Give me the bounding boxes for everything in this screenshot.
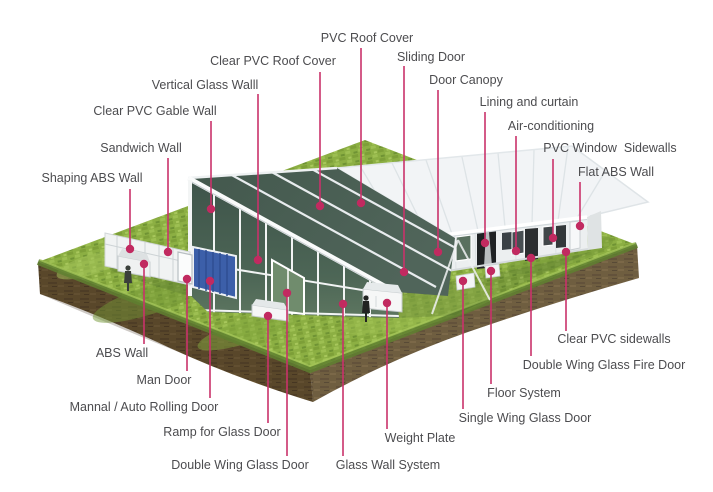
dot-air-conditioning: [512, 247, 520, 255]
dot-abs-wall: [140, 260, 148, 268]
dot-shaping-abs-wall: [126, 245, 134, 253]
dot-clear-pvc-gable-wall: [207, 205, 215, 213]
dot-clear-pvc-sidewalls: [562, 248, 570, 256]
label-floor-system: Floor System: [487, 386, 561, 400]
label-door-canopy: Door Canopy: [429, 73, 503, 87]
label-sliding-door: Sliding Door: [397, 50, 465, 64]
dot-clear-pvc-roof-cover: [316, 202, 324, 210]
dot-double-wing-glass-fire-door: [527, 254, 535, 262]
label-clear-pvc-roof-cover: Clear PVC Roof Cover: [210, 54, 336, 68]
label-double-wing-glass-door: Double Wing Glass Door: [171, 458, 309, 472]
label-air-conditioning: Air-conditioning: [508, 119, 594, 133]
dot-single-wing-glass-door: [459, 277, 467, 285]
label-double-wing-glass-fire-door: Double Wing Glass Fire Door: [523, 358, 686, 372]
label-pvc-roof-cover: PVC Roof Cover: [321, 31, 413, 45]
label-mannal-auto-rolling-door: Mannal / Auto Rolling Door: [70, 400, 219, 414]
label-glass-wall-system: Glass Wall System: [336, 458, 440, 472]
label-abs-wall: ABS Wall: [96, 346, 148, 360]
label-lining-and-curtain: Lining and curtain: [480, 95, 579, 109]
tent-illustration: [0, 0, 713, 492]
label-pvc-window-sidewalls: PVC Window Sidewalls: [543, 141, 676, 155]
dot-pvc-roof-cover: [357, 199, 365, 207]
label-weight-plate: Weight Plate: [385, 431, 456, 445]
tent-parts-diagram: PVC Roof Cover Clear PVC Roof Cover Slid…: [0, 0, 713, 492]
dot-door-canopy: [434, 248, 442, 256]
glass-window: [456, 235, 471, 261]
dot-double-wing-glass-door: [283, 289, 291, 297]
dot-glass-wall-system: [339, 300, 347, 308]
dot-floor-system: [487, 267, 495, 275]
dot-sandwich-wall: [164, 248, 172, 256]
label-single-wing-glass-door: Single Wing Glass Door: [459, 411, 592, 425]
label-vertical-glass-walll: Vertical Glass Walll: [152, 78, 259, 92]
label-clear-pvc-sidewalls: Clear PVC sidewalls: [557, 332, 670, 346]
dot-pvc-window-sidewalls: [549, 234, 557, 242]
dot-ramp-for-glass-door: [264, 312, 272, 320]
dot-flat-abs-wall: [576, 222, 584, 230]
dark-window: [556, 225, 566, 248]
label-man-door: Man Door: [137, 373, 192, 387]
label-ramp-for-glass-door: Ramp for Glass Door: [163, 425, 280, 439]
label-sandwich-wall: Sandwich Wall: [100, 141, 182, 155]
label-flat-abs-wall: Flat ABS Wall: [578, 165, 654, 179]
label-clear-pvc-gable-wall: Clear PVC Gable Wall: [93, 104, 216, 118]
dot-lining-and-curtain: [481, 239, 489, 247]
label-shaping-abs-wall: Shaping ABS Wall: [42, 171, 143, 185]
dot-sliding-door: [400, 268, 408, 276]
dot-mannal-auto-rolling-door: [206, 277, 214, 285]
dot-vertical-glass-walll: [254, 256, 262, 264]
dot-man-door: [183, 275, 191, 283]
small-window: [502, 232, 512, 250]
tent-end-wall: [587, 211, 602, 250]
dot-weight-plate: [383, 299, 391, 307]
